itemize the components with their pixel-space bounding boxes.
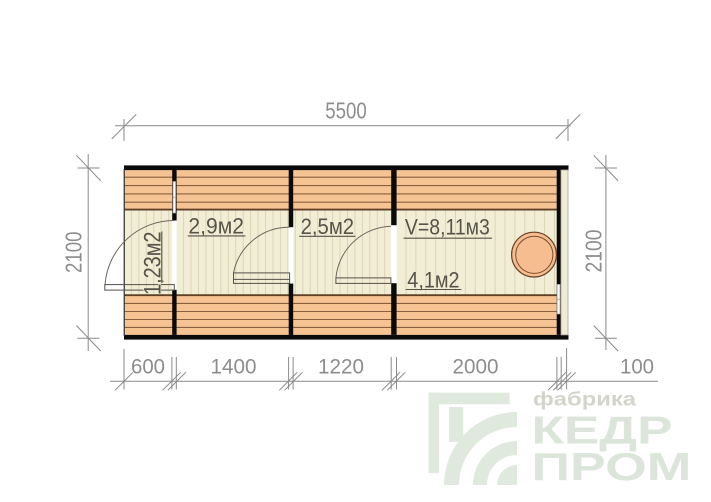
svg-text:2100: 2100 [581,230,607,273]
svg-text:V=8,11м3: V=8,11м3 [405,215,490,240]
svg-text:фабрика: фабрика [533,390,637,411]
svg-text:1400: 1400 [211,355,257,378]
svg-text:4,1м2: 4,1м2 [407,267,459,292]
svg-text:5500: 5500 [325,98,367,124]
svg-text:2100: 2100 [61,232,87,274]
svg-text:100: 100 [620,355,654,378]
svg-text:600: 600 [131,355,165,378]
svg-text:2000: 2000 [453,355,499,378]
svg-text:ПРОМ: ПРОМ [532,446,692,489]
svg-text:2,9м2: 2,9м2 [188,213,244,238]
svg-text:1220: 1220 [318,355,364,378]
svg-text:2,5м2: 2,5м2 [301,214,355,239]
